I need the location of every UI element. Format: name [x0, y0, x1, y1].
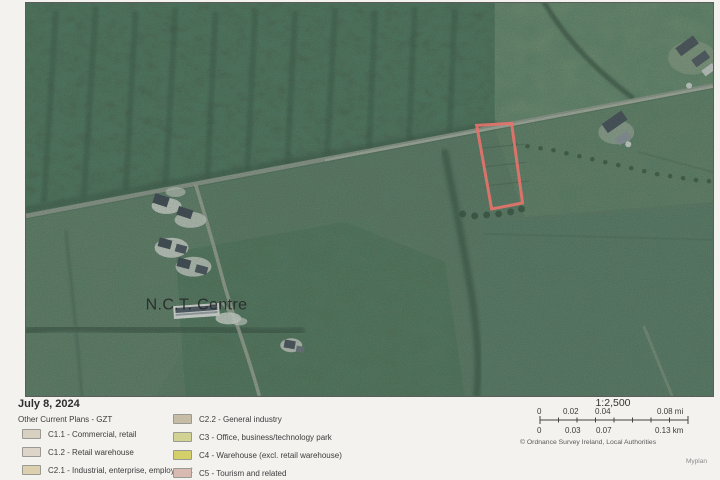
legend-item-c3: C3 - Office, business/technology park	[173, 428, 342, 446]
zone-label-c3: C3 - Office, business/technology park	[199, 433, 332, 442]
zone-label-c4: C4 - Warehouse (excl. retail warehouse)	[199, 451, 342, 460]
legend-item-c5: C5 - Tourism and related	[173, 464, 342, 480]
legend-item-c2-2: C2.2 - General industry	[173, 410, 342, 428]
map-date: July 8, 2024	[18, 398, 80, 410]
zone-label-c5: C5 - Tourism and related	[199, 469, 286, 478]
legend-item-c4: C4 - Warehouse (excl. retail warehouse)	[173, 446, 342, 464]
zone-label-c2-2: C2.2 - General industry	[199, 415, 282, 424]
myplan-watermark: Myplan	[686, 458, 707, 465]
zone-label-c1-1: C1.1 - Commercial, retail	[48, 430, 136, 439]
zone-label-c2-1: C2.1 - Industrial, enterprise, employmen…	[48, 466, 193, 475]
map-haze	[26, 3, 713, 396]
zone-swatch-c2-1	[22, 465, 41, 475]
scale-km-1: 0.03	[565, 426, 581, 435]
scale-bar-ticks	[539, 415, 689, 425]
zone-swatch-c4	[173, 450, 192, 460]
zone-label-c1-2: C1.2 - Retail warehouse	[48, 448, 134, 457]
scale-km-2: 0.07	[596, 426, 612, 435]
legend-item-c1-2: C1.2 - Retail warehouse	[22, 443, 193, 461]
aerial-map-viewport[interactable]: N.C.T. Centre	[25, 2, 714, 397]
legend-column-left: C1.1 - Commercial, retail C1.2 - Retail …	[22, 425, 193, 479]
copyright-attribution: © Ordnance Survey Ireland, Local Authori…	[520, 439, 656, 446]
zone-swatch-c1-1	[22, 429, 41, 439]
zone-swatch-c2-2	[173, 414, 192, 424]
scale-km-0: 0	[537, 426, 541, 435]
zone-swatch-c1-2	[22, 447, 41, 457]
legend-title: Other Current Plans - GZT	[18, 415, 112, 424]
legend-item-c2-1: C2.1 - Industrial, enterprise, employmen…	[22, 461, 193, 479]
scale-km-3: 0.13 km	[655, 426, 683, 435]
map-label-nct: N.C.T. Centre	[146, 296, 248, 313]
aerial-basemap: N.C.T. Centre	[26, 3, 713, 396]
legend-column-right: C2.2 - General industry C3 - Office, bus…	[173, 410, 342, 480]
myplan-print-page: N.C.T. Centre July 8, 2024 Other Current…	[0, 0, 720, 480]
zone-swatch-c3	[173, 432, 192, 442]
zone-swatch-c5	[173, 468, 192, 478]
legend-item-c1-1: C1.1 - Commercial, retail	[22, 425, 193, 443]
